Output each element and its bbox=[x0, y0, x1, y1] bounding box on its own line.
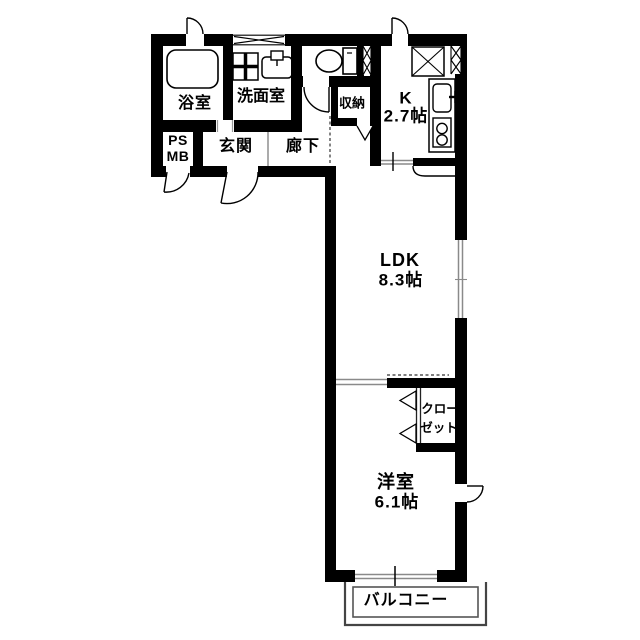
wall-segment bbox=[223, 46, 233, 120]
bathtub-icon bbox=[167, 50, 218, 88]
wall-segment bbox=[370, 46, 381, 166]
meterbox-door-swing bbox=[164, 172, 189, 192]
floorplan-drawing bbox=[0, 0, 640, 640]
bathroom-label: 浴室 bbox=[178, 96, 212, 112]
balcony-label: バルコニー bbox=[364, 593, 449, 609]
sliding-door-icon bbox=[381, 152, 413, 171]
western-room-door-swing bbox=[467, 486, 483, 502]
wall-segment bbox=[258, 166, 336, 177]
folding-door-icon bbox=[400, 391, 416, 410]
hanging-wall-curve bbox=[413, 166, 455, 176]
western-room-size-label: 6.1帖 bbox=[375, 494, 420, 511]
wall-segment bbox=[325, 166, 336, 582]
wall-segment bbox=[387, 378, 467, 388]
floorplan: 浴室 洗面室 PS MB 玄関 廊下 収納 K 2.7帖 LDK 8.3帖 クロ… bbox=[0, 0, 640, 640]
window-x-icon bbox=[233, 35, 285, 45]
storage-label: 収納 bbox=[339, 97, 365, 110]
wall-segment bbox=[325, 570, 355, 582]
wall-segment bbox=[151, 34, 163, 177]
closet-doors bbox=[400, 388, 421, 443]
washroom-door-opening bbox=[218, 120, 233, 132]
closet-label-line2: ゼット bbox=[420, 422, 458, 435]
kitchen-label: K bbox=[399, 90, 412, 107]
kitchen-sink-icon bbox=[433, 84, 451, 112]
toilet-icon bbox=[316, 48, 357, 74]
gas-stove-icon bbox=[433, 118, 451, 147]
pipe-shaft-x-icon bbox=[363, 46, 371, 75]
wall-segment bbox=[373, 118, 381, 126]
wall-segment bbox=[285, 34, 392, 46]
wall-segment bbox=[193, 120, 203, 177]
ldk-window bbox=[455, 240, 467, 318]
entrance-door-swing bbox=[221, 172, 258, 204]
refrigerator-icon bbox=[412, 47, 444, 76]
washing-machine-pan-icon bbox=[233, 53, 258, 80]
folding-door-icon bbox=[400, 424, 416, 443]
pipe-shaft-x-icon bbox=[451, 46, 461, 74]
western-room-label: 洋室 bbox=[377, 473, 415, 491]
wall-segment bbox=[204, 34, 233, 46]
toilet-door-swing bbox=[304, 87, 329, 112]
kitchen-size-label: 2.7帖 bbox=[384, 108, 429, 125]
wall-segment bbox=[151, 120, 216, 132]
wall-segment bbox=[234, 120, 298, 132]
wall-segment bbox=[151, 166, 166, 177]
ldk-size-label: 8.3帖 bbox=[379, 272, 424, 289]
ldk-label: LDK bbox=[380, 251, 420, 269]
hallway-label: 廊下 bbox=[286, 139, 320, 155]
western-room-window bbox=[355, 566, 437, 586]
closet-label-line1: クロー bbox=[421, 403, 459, 416]
door-swing-icon bbox=[187, 18, 203, 34]
wall-segment bbox=[437, 570, 467, 582]
meter-box-label: MB bbox=[167, 149, 190, 163]
wall-segment bbox=[293, 76, 303, 87]
entrance-label: 玄関 bbox=[219, 139, 253, 155]
washroom-label: 洗面室 bbox=[237, 89, 285, 105]
washbasin-icon bbox=[262, 51, 292, 78]
wall-segment bbox=[291, 46, 302, 132]
pipe-space-label: PS bbox=[168, 133, 188, 147]
wall-segment bbox=[416, 443, 455, 452]
room-boundary-open bbox=[336, 380, 387, 385]
faucet-icon bbox=[271, 51, 283, 60]
wall-segment bbox=[331, 118, 357, 126]
door-swing-icon bbox=[392, 18, 408, 34]
wall-segment bbox=[413, 158, 467, 166]
